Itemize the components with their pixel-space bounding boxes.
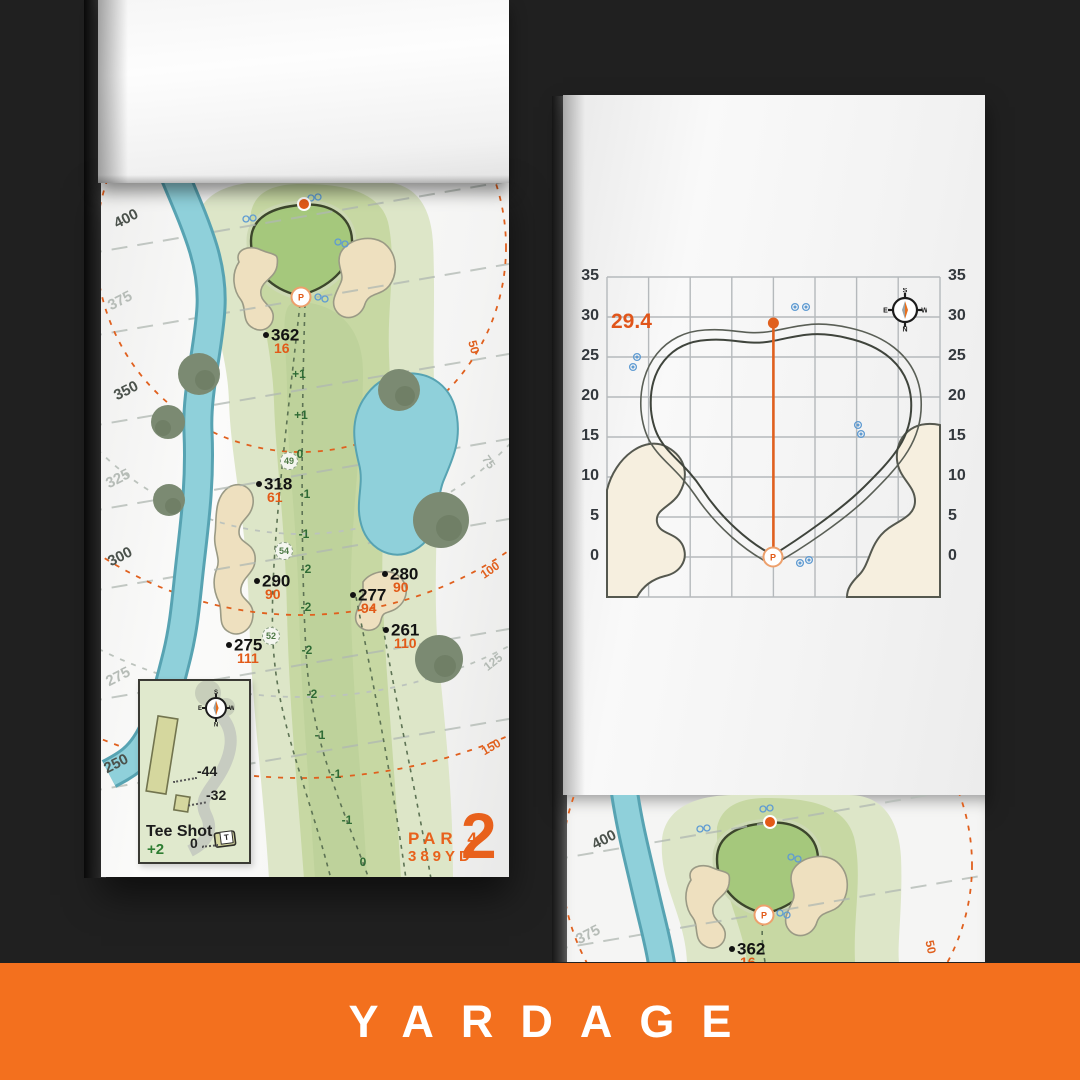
hole-location-dot-icon [297, 197, 311, 211]
elevation-label: +1 [292, 367, 306, 381]
axis-tick: 20 [948, 387, 966, 405]
tee-shot-value: +2 [147, 841, 164, 858]
svg-text:E: E [198, 706, 202, 712]
elevation-label: -1 [331, 767, 342, 781]
page-curl-shade [98, 0, 128, 183]
tee-marker-icon: T [219, 830, 233, 844]
marker-dot-icon [729, 946, 735, 952]
green-depth-value: 29.4 [611, 310, 652, 334]
svg-text:N: N [214, 723, 218, 728]
axis-tick: 35 [948, 267, 966, 285]
elevation-label: -2 [301, 600, 312, 614]
compass-icon: S N E W [198, 689, 234, 727]
marker-dot-icon [383, 627, 389, 633]
waypoint-circle: 54 [275, 542, 293, 560]
svg-text:N: N [902, 327, 907, 333]
axis-tick: 25 [565, 347, 599, 365]
yardage-marker: 362 16 [729, 941, 765, 962]
page-fold-shade [98, 175, 509, 183]
yardage-marker: 362 16 [263, 327, 299, 356]
axis-tick: 30 [948, 307, 966, 325]
marker-dot-icon [263, 332, 269, 338]
depth-dot [768, 318, 779, 329]
elevation-label: -2 [307, 687, 318, 701]
axis-tick: 10 [948, 467, 966, 485]
marker-dot-icon [382, 571, 388, 577]
elevation-label: -1 [342, 813, 353, 827]
elevation-label: 0 [297, 447, 304, 461]
yardage-banner: YARDAGE [0, 963, 1080, 1080]
axis-tick: 5 [948, 507, 957, 525]
marker-to-green: 110 [394, 636, 419, 651]
svg-text:W: W [229, 706, 234, 712]
svg-text:S: S [903, 288, 908, 295]
svg-text:W: W [921, 308, 927, 315]
green-detail-page: P 29.4 35 30 25 20 15 10 5 0 35 30 25 20… [563, 95, 985, 795]
elevation-label: -1 [315, 728, 326, 742]
marker-dot-icon [254, 578, 260, 584]
elevation-label: +1 [294, 408, 308, 422]
waypoint-circle: 49 [280, 452, 298, 470]
compass-icon: S N E W [883, 288, 927, 332]
yardage-marker: 275 111 [226, 637, 262, 666]
arc-label: 50 [922, 939, 938, 955]
axis-tick: 30 [565, 307, 599, 325]
axis-tick: 15 [565, 427, 599, 445]
green-collar-outline [641, 324, 921, 565]
pin-icon: P [763, 547, 784, 568]
tee-inset-title: Tee Shot [146, 823, 212, 841]
yardage-marker: 261 110 [383, 622, 419, 651]
green-chart-art [563, 95, 985, 795]
pin-icon: P [291, 287, 312, 308]
marker-dot-icon [256, 481, 262, 487]
next-hole-map-page: 400 375 50 P 362 16 [567, 795, 985, 962]
marker-dot-icon [350, 592, 356, 598]
axis-tick: 0 [948, 547, 957, 565]
axis-tick: 20 [565, 387, 599, 405]
yardage-marker: 277 94 [350, 587, 386, 616]
axis-tick: 15 [948, 427, 966, 445]
elevation-label: -1 [299, 527, 310, 541]
yardage-marker: 280 90 [382, 566, 418, 595]
tee-shot-inset: -44 -32 0 T Tee Shot +2 S N E W [138, 679, 251, 864]
elevation-label: 0 [360, 855, 367, 869]
elevation-label: -1 [300, 487, 311, 501]
yardage-marker: 290 90 [254, 573, 290, 602]
axis-tick: 10 [565, 467, 599, 485]
axis-tick: 0 [565, 547, 599, 565]
axis-tick: 35 [565, 267, 599, 285]
tee-offset-label: -44 [197, 763, 217, 779]
hole-location-dot-icon [763, 815, 777, 829]
tee-offset-label: -32 [206, 787, 226, 803]
svg-text:S: S [214, 690, 218, 696]
spine-shade [563, 95, 585, 795]
yardage-book-scene: 400 375 350 325 300 275 250 50 75 100 12… [0, 0, 1080, 1080]
marker-dot-icon [226, 642, 232, 648]
marker-to-green: 111 [237, 651, 262, 666]
flipped-blank-page [98, 0, 509, 183]
hole-map-page: 400 375 350 325 300 275 250 50 75 100 12… [101, 182, 509, 877]
axis-tick: 5 [565, 507, 599, 525]
pin-icon: P [754, 905, 775, 926]
svg-text:E: E [883, 308, 888, 315]
axis-tick: 25 [948, 347, 966, 365]
banner-title: YARDAGE [322, 996, 759, 1048]
yardage-marker: 318 61 [256, 476, 292, 505]
waypoint-circle: 52 [262, 627, 280, 645]
elevation-label: -2 [301, 562, 312, 576]
hole-number: 2 [461, 804, 497, 868]
elevation-label: -2 [302, 643, 313, 657]
